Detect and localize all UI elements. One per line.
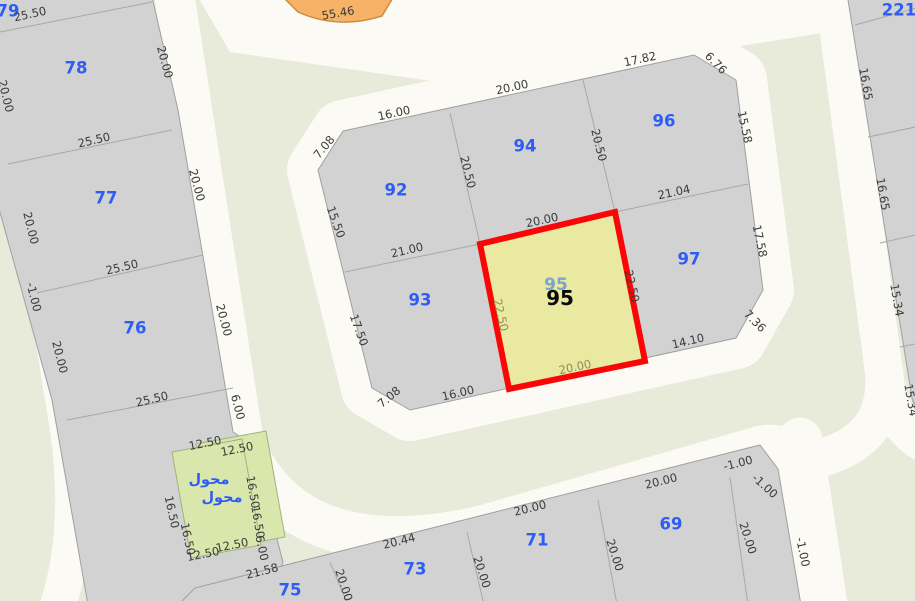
parcel-label-96[interactable]: 96 [653,112,676,131]
parcel-label-92[interactable]: 92 [385,181,408,200]
parcel-label-221[interactable]: 221 [882,1,915,20]
parcel-label-78[interactable]: 78 [65,59,88,78]
parcel-label-71[interactable]: 71 [526,531,549,550]
parcel-label-94[interactable]: 94 [514,137,537,156]
parcel-map[interactable]: 79787776929496939769717375221محولمحول959… [0,0,915,601]
parcel-label-73[interactable]: 73 [404,560,427,579]
transformer-label[interactable]: محول [201,490,242,506]
road-bottom-right [800,440,825,601]
map-canvas[interactable]: 79787776929496939769717375221محولمحول959… [0,0,915,601]
parcel-label-76[interactable]: 76 [124,319,147,338]
parcel-label-93[interactable]: 93 [409,291,432,310]
parcel-label-77[interactable]: 77 [95,189,118,208]
parcel-label-97[interactable]: 97 [678,250,701,269]
parcel-label-69[interactable]: 69 [660,515,683,534]
selected-parcel-label[interactable]: 95 [546,286,574,310]
transformer-label[interactable]: محول [188,472,229,488]
parcel-label-75[interactable]: 75 [279,581,302,600]
